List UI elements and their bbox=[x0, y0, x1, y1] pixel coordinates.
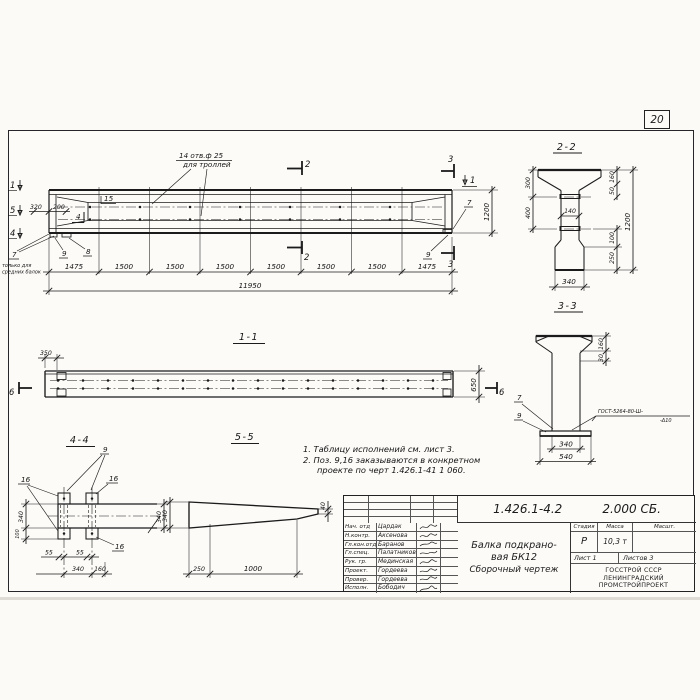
signature-mark bbox=[417, 576, 441, 584]
pos-label-7-right: 7 bbox=[467, 198, 472, 207]
holes-note-line1: 14 отв.ф 25 bbox=[179, 151, 224, 160]
document-title: Балка подкрано- вая БК12 Сборочный черте… bbox=[458, 523, 571, 593]
role-label: Провер. bbox=[344, 576, 377, 584]
dim-label: 400 bbox=[525, 207, 532, 219]
dim-label: 50 bbox=[609, 187, 616, 195]
signature-mark bbox=[417, 532, 441, 540]
pos-label-8: 8 bbox=[86, 247, 91, 256]
dim-label: 1500 bbox=[216, 262, 235, 271]
mass-column-header: Масса bbox=[598, 523, 633, 531]
title-block: 1.426.1-4.2 2.000 СБ. Нач. отд Цардак Н.… bbox=[343, 495, 695, 592]
pos-label-7: 7 bbox=[517, 393, 522, 402]
dim-label: 340 bbox=[72, 566, 84, 573]
dim-label: 340 bbox=[559, 440, 573, 449]
signature-mark bbox=[417, 558, 441, 566]
org-line3: ПРОМСТРОЙПРОЕКТ bbox=[571, 582, 696, 590]
note-line-2: 2. Поз. 9,16 заказываются в конкретном bbox=[303, 455, 528, 466]
pos-7-note-line2: средних балок bbox=[2, 270, 41, 276]
dim-label: 55 bbox=[76, 550, 84, 557]
signature-table: Нач. отд Цардак Н.контр. Аксенова Гл.кон… bbox=[344, 523, 458, 593]
dim-label: 1200 bbox=[623, 212, 632, 231]
section-title: 1-1 bbox=[239, 332, 259, 343]
dim-label: 1500 bbox=[115, 262, 134, 271]
stage-value: Р bbox=[571, 532, 598, 552]
role-label: Нач. отд bbox=[344, 523, 377, 531]
signature-mark bbox=[417, 541, 441, 549]
role-label: Гл.спец. bbox=[344, 549, 377, 557]
role-label: Рук. гр. bbox=[344, 558, 377, 566]
dim-label: 1475 bbox=[65, 262, 84, 271]
signature-row: Рук. гр. Мединская bbox=[344, 558, 458, 567]
section-title: 3-3 bbox=[558, 301, 578, 312]
dim-label: 540 bbox=[559, 452, 573, 461]
pos-label-9-right: 9 bbox=[426, 250, 431, 259]
mass-value: 10,3 т bbox=[598, 532, 633, 552]
signature-row: Гл.кон.отд Баранов bbox=[344, 541, 458, 550]
scale-column-header: Масшт. bbox=[633, 523, 696, 531]
pos-label-9: 9 bbox=[103, 445, 108, 454]
weld-note-line1: ГОСТ-5264-80-Ш- bbox=[598, 409, 643, 415]
section-mark-4-inner: 4 bbox=[76, 212, 81, 221]
role-label: Гл.кон.отд bbox=[344, 541, 377, 549]
cut-mark-6-left: 6 bbox=[9, 387, 14, 397]
dim-label: 1500 bbox=[317, 262, 336, 271]
name-label: Цардак bbox=[377, 523, 417, 531]
dim-label: 160 bbox=[609, 171, 616, 183]
dim-label: 250 bbox=[609, 252, 616, 264]
designation-suffix: 2.000 СБ. bbox=[602, 502, 661, 516]
dim-label: 100 bbox=[609, 232, 616, 244]
section-2-2-view: 2-2 140 300 400 bbox=[525, 142, 638, 291]
signature-mark bbox=[417, 523, 441, 531]
dim-label: 250 bbox=[193, 566, 205, 573]
elevation-view: 1475 1500 1500 1500 1500 1500 1500 1475 … bbox=[2, 151, 498, 295]
cut-mark-6-right: 6 bbox=[499, 387, 504, 397]
dim-label: 1500 bbox=[368, 262, 387, 271]
weld-note-line2: -Δ10 bbox=[660, 418, 672, 424]
dim-label: 40 bbox=[320, 502, 327, 510]
dim-label: 160 bbox=[598, 338, 605, 350]
section-mark-1-right: 1 bbox=[470, 175, 475, 185]
drawing-canvas: 1475 1500 1500 1500 1500 1500 1500 1475 … bbox=[0, 0, 700, 700]
dim-label: 650 bbox=[469, 378, 478, 392]
doc-title-line3: Сборочный чертеж bbox=[470, 564, 559, 576]
dim-label: 1500 bbox=[267, 262, 286, 271]
section-title: 5-5 bbox=[235, 432, 255, 443]
dim-label: 160 bbox=[94, 566, 106, 573]
title-block-right: Стадия Масса Масшт. Р 10,3 т Лист 1 Лист… bbox=[571, 523, 696, 593]
signature-mark bbox=[417, 567, 441, 575]
dim-label: 1500 bbox=[166, 262, 185, 271]
role-label: Н.контр. bbox=[344, 532, 377, 540]
pos-7-note-line1: только для bbox=[2, 263, 31, 269]
doc-title-line1: Балка подкрано- bbox=[471, 540, 556, 552]
role-label: Исполн. bbox=[344, 584, 377, 593]
dim-label: 340 bbox=[18, 511, 25, 523]
name-label: Гордеева bbox=[377, 567, 417, 575]
cut-mark-3-bottom: 3 bbox=[448, 259, 453, 269]
name-label: Мединская bbox=[377, 558, 417, 566]
cut-mark-2-top: 2 bbox=[305, 159, 310, 169]
sheet-label: Лист 1 bbox=[571, 553, 619, 563]
pos-label-7: 7 bbox=[12, 250, 17, 259]
pos-label-16-top: 16 bbox=[109, 474, 119, 483]
name-label: Палатников bbox=[377, 549, 417, 557]
signature-row: Провер. Гордеева bbox=[344, 576, 458, 585]
section-mark-5: 5 bbox=[10, 205, 15, 215]
holes-note-line2: для троллей bbox=[182, 160, 231, 169]
name-label: Бободич bbox=[377, 584, 417, 593]
section-mark-4: 4 bbox=[10, 228, 15, 238]
name-label: Баранов bbox=[377, 541, 417, 549]
pos-label-9: 9 bbox=[62, 249, 67, 258]
section-mark-1: 1 bbox=[10, 180, 15, 190]
dim-label: 140 bbox=[564, 208, 576, 215]
section-1-1-view: 1-1 bbox=[9, 332, 504, 403]
dim-label: 30 bbox=[598, 354, 605, 362]
dim-label: 300 bbox=[525, 177, 532, 189]
pos-label-15: 15 bbox=[104, 194, 114, 203]
dim-total-label: 11950 bbox=[239, 281, 262, 290]
scale-value bbox=[633, 532, 696, 552]
note-line-1: 1. Таблицу исполнений см. лист 3. bbox=[303, 444, 528, 455]
dim-label: 1000 bbox=[244, 564, 263, 573]
dim-label: 100 bbox=[15, 529, 21, 539]
signature-row: Н.контр. Аксенова bbox=[344, 532, 458, 541]
drawing-designation: 1.426.1-4.2 2.000 СБ. bbox=[458, 496, 696, 523]
name-label: Гордеева bbox=[377, 576, 417, 584]
dim-label: 340 bbox=[162, 510, 169, 522]
pos-label-16-left: 16 bbox=[21, 475, 31, 484]
drawing-notes: 1. Таблицу исполнений см. лист 3. 2. Поз… bbox=[303, 444, 528, 476]
cut-mark-3-top: 3 bbox=[448, 154, 453, 164]
dim-label: 1200 bbox=[482, 202, 491, 221]
dim-label: 200 bbox=[53, 204, 65, 211]
signature-mark bbox=[417, 549, 441, 557]
dim-label: 1475 bbox=[418, 262, 437, 271]
section-title: 2-2 bbox=[557, 142, 577, 153]
dim-label: 340 bbox=[562, 277, 576, 286]
designation-number: 1.426.1-4.2 bbox=[493, 502, 562, 516]
signature-row: Гл.спец. Палатников bbox=[344, 549, 458, 558]
role-label: Проект. bbox=[344, 567, 377, 575]
note-line-3: проекте по черт 1.426.1-41 1 060. bbox=[303, 465, 528, 476]
signature-mark bbox=[417, 584, 441, 593]
org-line1: ГОССТРОЙ СССР bbox=[571, 567, 696, 575]
signature-row: Нач. отд Цардак bbox=[344, 523, 458, 532]
section-4-4-view: 4-4 9 16 16 bbox=[15, 435, 168, 578]
dim-label: 350 bbox=[40, 350, 52, 357]
doc-title-line2: вая БК12 bbox=[491, 552, 537, 564]
drawing-sheet: 20 bbox=[0, 0, 700, 700]
pos-label-16-bottom: 16 bbox=[115, 542, 125, 551]
pos-label-9: 9 bbox=[517, 411, 522, 420]
cut-mark-2-bottom: 2 bbox=[304, 252, 309, 262]
section-3-3-view: 3-3 7 9 ГОСТ-5264-80-Ш- -Δ10 bbox=[514, 301, 690, 465]
name-label: Аксенова bbox=[377, 532, 417, 540]
sheets-label: Листов 3 bbox=[619, 553, 696, 563]
signature-row: Проект. Гордеева bbox=[344, 567, 458, 576]
organization-name: ГОССТРОЙ СССР ЛЕНИНГРАДСКИЙ ПРОМСТРОЙПРО… bbox=[571, 564, 696, 593]
signature-row: Исполн. Бободич bbox=[344, 584, 458, 593]
dim-label: 55 bbox=[45, 550, 53, 557]
stage-column-header: Стадия bbox=[571, 523, 598, 531]
revision-grid bbox=[344, 496, 458, 523]
section-title: 4-4 bbox=[70, 435, 90, 446]
